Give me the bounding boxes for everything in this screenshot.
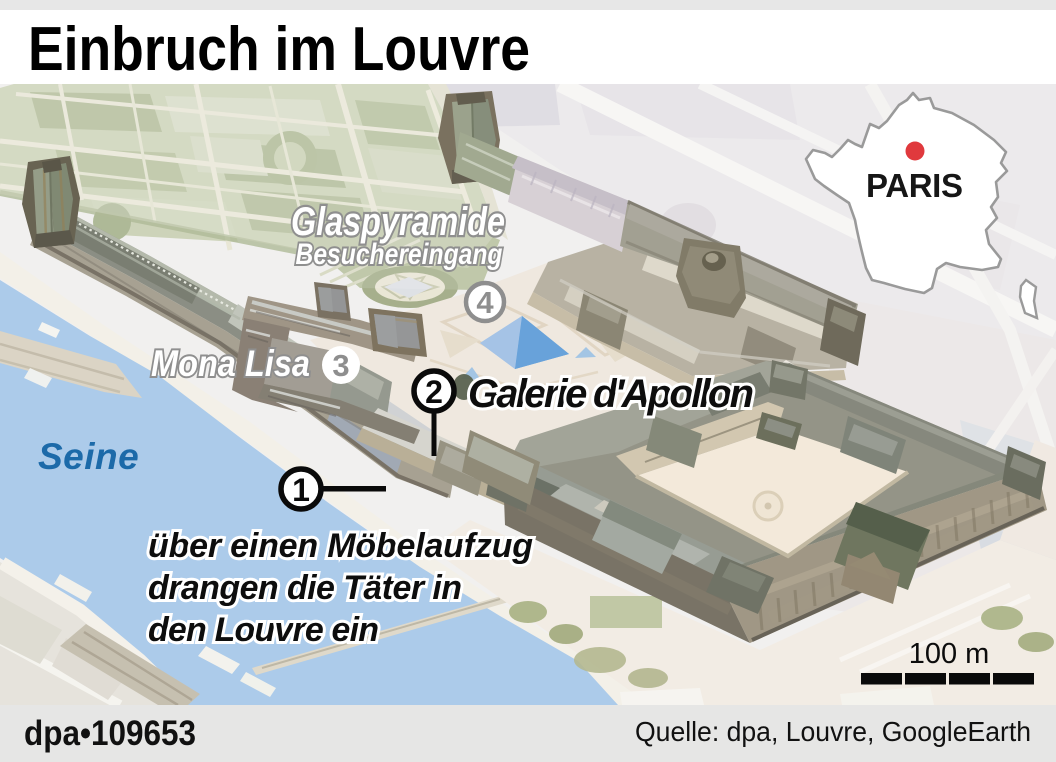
svg-text:über einen Möbelaufzug: über einen Möbelaufzug: [148, 527, 533, 565]
svg-text:PARIS: PARIS: [866, 167, 963, 204]
svg-text:Einbruch im Louvre: Einbruch im Louvre: [28, 15, 530, 84]
svg-text:dpa•109653: dpa•109653: [24, 714, 196, 753]
svg-text:Besuchereingang: Besuchereingang: [296, 238, 503, 271]
svg-text:3: 3: [332, 348, 349, 383]
svg-text:Galerie d'Apollon: Galerie d'Apollon: [468, 372, 754, 416]
svg-text:Seine: Seine: [38, 436, 139, 477]
svg-text:2: 2: [425, 374, 443, 410]
svg-text:den Louvre ein: den Louvre ein: [148, 611, 379, 649]
svg-text:drangen die Täter in: drangen die Täter in: [148, 569, 462, 607]
svg-text:100 m: 100 m: [909, 638, 990, 670]
svg-text:1: 1: [292, 472, 310, 508]
svg-text:Mona Lisa: Mona Lisa: [151, 343, 310, 384]
svg-text:4: 4: [476, 285, 494, 320]
svg-text:Quelle: dpa, Louvre, GoogleEar: Quelle: dpa, Louvre, GoogleEarth: [635, 716, 1031, 747]
